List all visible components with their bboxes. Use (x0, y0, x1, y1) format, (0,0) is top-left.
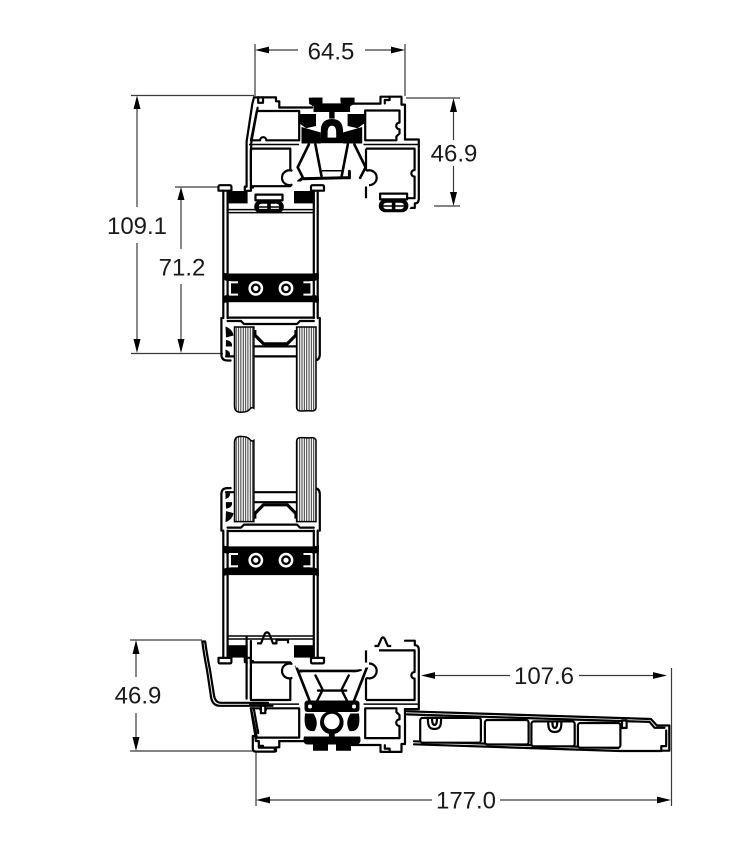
svg-text:46.9: 46.9 (115, 683, 162, 710)
svg-text:71.2: 71.2 (159, 255, 206, 282)
svg-text:107.6: 107.6 (514, 663, 574, 690)
svg-text:64.5: 64.5 (308, 39, 355, 66)
svg-text:109.1: 109.1 (107, 213, 167, 240)
svg-text:177.0: 177.0 (436, 788, 496, 815)
svg-text:46.9: 46.9 (431, 141, 478, 168)
